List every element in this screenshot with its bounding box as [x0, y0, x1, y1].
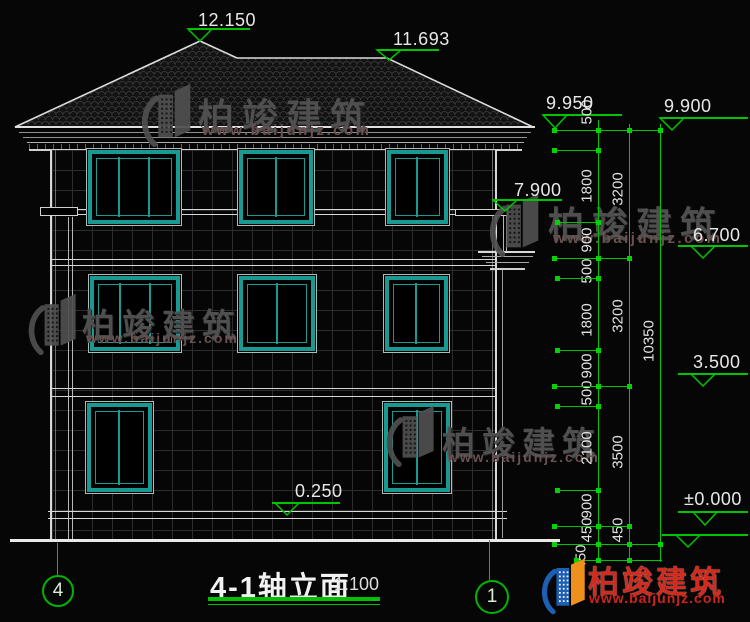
dim-tick — [627, 128, 632, 133]
dim-tick — [555, 488, 560, 493]
elevation-triangle-icon — [493, 200, 517, 211]
elevation-label: 11.693 — [393, 29, 450, 50]
dim-tick — [596, 348, 601, 353]
dim-text: 450 — [579, 517, 596, 542]
dim-tick — [596, 148, 601, 153]
brand-building-icon — [541, 554, 589, 618]
dim-connector — [556, 350, 599, 351]
dim-connector — [553, 258, 630, 259]
elevation-marker-icons — [0, 0, 750, 622]
brand-logo-url: www.baijunjz.com — [589, 590, 726, 606]
dim-text: 450 — [610, 517, 627, 542]
dimension-layer: 12.150 11.693 9.950 9.900 7.900 6.700 3.… — [0, 0, 750, 622]
dim-connector — [553, 150, 599, 151]
elevation-triangle-icon — [377, 50, 401, 60]
dim-text: 2100 — [579, 431, 596, 464]
dim-text: 900 — [579, 353, 596, 378]
dim-tick — [596, 220, 601, 225]
dim-connector — [556, 222, 599, 223]
axis-bubble-label: 4 — [53, 580, 64, 602]
title-underline — [208, 597, 380, 601]
dim-tick — [658, 128, 663, 133]
elevation-label: ±0.000 — [684, 489, 742, 510]
dim-tick — [596, 488, 601, 493]
dim-tick — [555, 404, 560, 409]
dim-connector — [553, 386, 630, 387]
dim-tick — [555, 276, 560, 281]
dim-tick — [552, 256, 557, 261]
elevation-label: 6.700 — [693, 225, 741, 246]
dim-tick — [552, 148, 557, 153]
elevation-triangle-icon — [660, 118, 684, 130]
dim-tick — [627, 256, 632, 261]
dim-text: 10350 — [641, 320, 658, 362]
dim-tick — [552, 128, 557, 133]
elevation-drawing-canvas: 柏竣建筑 www.baijunjz.com 柏竣建筑 www.baijunjz.… — [0, 0, 750, 622]
dim-tick — [596, 276, 601, 281]
elevation-label: 9.900 — [664, 96, 712, 117]
dim-tick — [596, 256, 601, 261]
dim-text: 3200 — [610, 172, 627, 205]
dim-tick — [596, 542, 601, 547]
elevation-label: 12.150 — [198, 10, 256, 31]
dim-tick — [627, 542, 632, 547]
dim-tick — [658, 542, 663, 547]
drawing-scale: 1:100 — [334, 574, 379, 595]
dim-text: 1800 — [579, 303, 596, 336]
dim-tick — [627, 384, 632, 389]
dim-tick — [596, 404, 601, 409]
elevation-triangle-icon — [275, 503, 299, 515]
elevation-triangle-icon — [691, 246, 715, 258]
dim-tick — [555, 220, 560, 225]
axis-bubble-right: 1 — [475, 580, 509, 614]
dim-text: 500 — [579, 99, 596, 124]
dim-connector — [553, 526, 630, 527]
elevation-triangle-icon — [543, 115, 567, 128]
axis-line — [489, 540, 490, 580]
elevation-label: 7.900 — [514, 180, 562, 201]
elevation-label: 3.500 — [693, 352, 741, 373]
axis-bubble-label: 1 — [487, 586, 498, 608]
axis-line — [57, 543, 58, 575]
elevation-label: 0.250 — [295, 481, 343, 502]
dim-tick — [552, 524, 557, 529]
axis-bubble-left: 4 — [42, 575, 74, 607]
title-underline — [208, 604, 380, 605]
dim-text: 900 — [579, 493, 596, 518]
dim-connector — [556, 490, 599, 491]
dim-connector — [553, 130, 662, 131]
dim-tick — [596, 384, 601, 389]
dim-text: 900 — [579, 227, 596, 252]
dim-connector — [556, 406, 599, 407]
elevation-triangle-icon — [676, 535, 700, 547]
dim-text: 500 — [579, 258, 596, 283]
brand-logo — [541, 554, 589, 618]
dim-text: 1800 — [579, 169, 596, 202]
dim-connector — [556, 278, 599, 279]
dim-tick — [555, 348, 560, 353]
dim-tick — [596, 128, 601, 133]
dim-text: 3200 — [610, 299, 627, 332]
dim-tick — [552, 384, 557, 389]
dim-connector — [553, 544, 662, 545]
dim-text: 500 — [579, 380, 596, 405]
elevation-triangle-icon — [693, 512, 717, 525]
elevation-triangle-icon — [691, 374, 715, 386]
dim-tick — [552, 542, 557, 547]
dim-text: 3500 — [610, 435, 627, 468]
dim-tick — [627, 524, 632, 529]
dim-tick — [596, 524, 601, 529]
